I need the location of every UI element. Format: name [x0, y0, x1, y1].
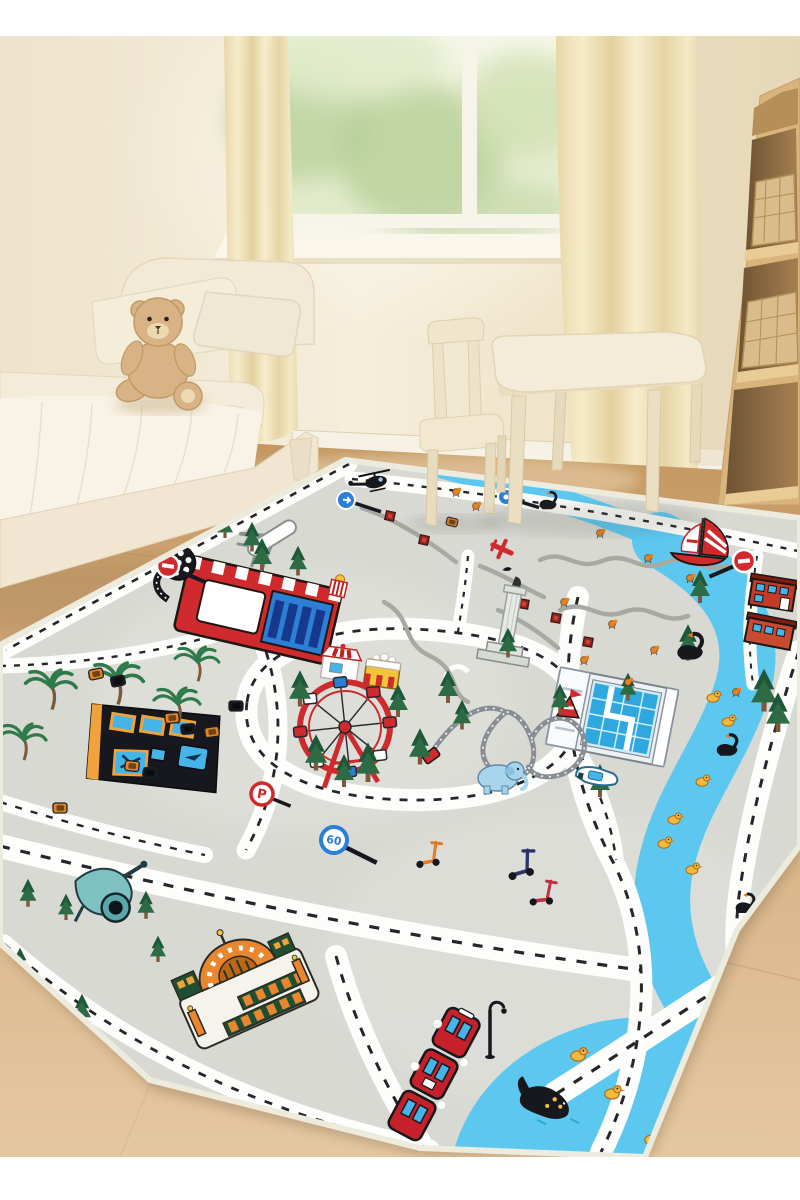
bottom-white-band: [0, 1157, 800, 1200]
wicker-basket: [752, 174, 796, 246]
speed-limit-value: 60: [325, 833, 343, 849]
window-glare: [246, 36, 584, 226]
bench: [385, 511, 396, 522]
table-leg: [646, 390, 661, 512]
toy-car: [88, 668, 104, 681]
toy-car: [53, 803, 67, 813]
chair-leg: [484, 443, 496, 514]
bed-leg: [290, 438, 312, 480]
bench: [551, 613, 561, 623]
table-leg: [690, 384, 702, 462]
bed-pillow: [194, 292, 301, 356]
toy-car: [181, 723, 196, 734]
table-top: [492, 332, 706, 392]
bench: [583, 637, 593, 647]
toy-car: [165, 712, 180, 723]
window-frame-bottom: [246, 214, 584, 228]
toy-car: [125, 760, 140, 771]
chair-leg: [497, 436, 506, 492]
curtain-right: [556, 36, 702, 513]
toy-car: [204, 726, 219, 738]
chair-leg: [426, 450, 438, 526]
bench: [419, 535, 430, 546]
chair-top-rail: [428, 318, 484, 344]
wicker-basket: [742, 292, 798, 368]
shelf-opening: [726, 382, 798, 494]
top-white-band: [0, 0, 800, 36]
toy-car: [143, 767, 158, 778]
toy-car: [110, 675, 126, 688]
window-mullion: [462, 36, 477, 228]
room-photo: P 60: [0, 0, 800, 1200]
toy-car: [229, 701, 243, 711]
